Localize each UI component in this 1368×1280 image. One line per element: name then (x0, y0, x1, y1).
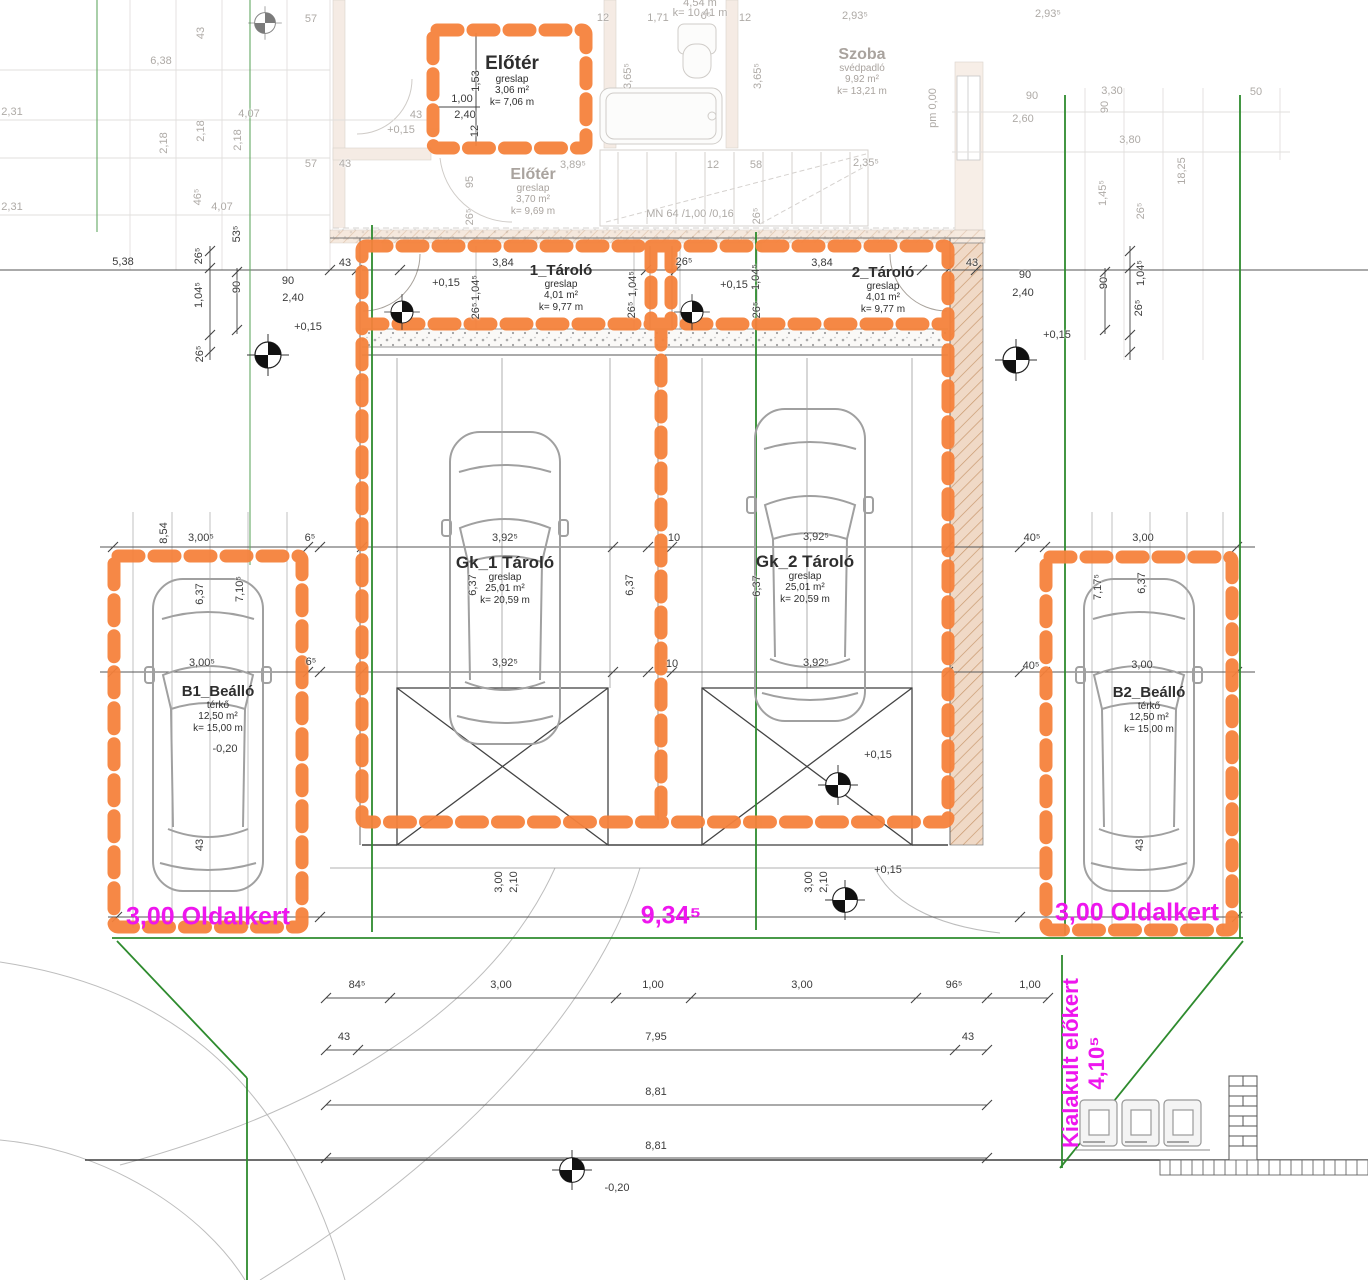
floor-plan: 121,716⁵122,93⁵2,93⁵4,54 mk= 10,41 m3,65… (0, 0, 1368, 1280)
dim-label: 3,84 (811, 257, 832, 269)
dim-label: 10 (668, 532, 680, 544)
dim-label: 1,04⁵ (627, 271, 639, 297)
dim-label: +0,15 (432, 277, 460, 289)
curb-strip (1160, 1160, 1368, 1175)
dim-label: 3,00⁵ (188, 532, 214, 544)
room-detail: greslap (852, 281, 915, 292)
kialakult-elokert-label: Kialakult előkert (1058, 978, 1084, 1148)
dim-label: 6,38 (150, 55, 171, 67)
dim-label: 96⁵ (946, 979, 963, 991)
dim-label: 3,84 (492, 257, 513, 269)
room-elotere-lower: Előtérgreslap3,70 m²k= 9,69 m (510, 166, 555, 217)
dim-label: 43 (410, 109, 422, 121)
dim-label: 2,40 (1012, 287, 1033, 299)
dim-label: 1,04⁵ (750, 264, 762, 290)
room-tarolo-2: 2_Tárológreslap4,01 m²k= 9,77 m (852, 264, 915, 315)
oldalkert-right-label: 3,00 Oldalkert (1055, 899, 1219, 928)
dim-label: +0,15 (874, 864, 902, 876)
dim-label: 57 (305, 158, 317, 170)
dim-label: 2,60 (1012, 113, 1033, 125)
dim-label: 3,00⁵ (189, 657, 215, 669)
room-detail: k= 9,69 m (510, 206, 555, 217)
dim-label: 7,95 (645, 1031, 666, 1043)
dim-label: 6⁵ (305, 532, 316, 544)
dim-label: 6,37 (194, 583, 206, 604)
dim-label: 43 (1134, 839, 1146, 851)
dim-label: 43 (339, 158, 351, 170)
dim-label: 1,00 (451, 93, 472, 105)
dim-label: +0,15 (294, 321, 322, 333)
dim-label: 3,00 (493, 871, 505, 892)
room-title: 1_Tároló (530, 262, 593, 279)
dim-label: k= 10,41 m (673, 7, 728, 19)
dim-9-34-label: 9,34⁵ (641, 902, 701, 931)
room-tarolo-1: 1_Tárológreslap4,01 m²k= 9,77 m (530, 262, 593, 313)
dim-label: -0,20 (604, 1182, 629, 1194)
dim-label: 90 (1026, 90, 1038, 102)
dim-label: 26⁵ (1135, 203, 1147, 220)
dim-label: 3,92⁵ (492, 657, 518, 669)
dim-label: 2,31 (1, 106, 22, 118)
dim-label: 2,35⁵ (853, 157, 879, 169)
dim-label: 90 (231, 281, 243, 293)
room-detail: k= 9,77 m (530, 302, 593, 313)
dim-label: 3,00 (803, 871, 815, 892)
dim-label: 6,37 (624, 574, 636, 595)
oldalkert-left-label: 3,00 Oldalkert (126, 903, 290, 932)
dim-label: 26⁵ (464, 209, 476, 226)
dim-label: 46⁵ (192, 189, 204, 206)
room-detail: k= 15,00 m (182, 723, 255, 734)
room-b2-beallo: B2_Beállótérkő12,50 m²k= 15,00 m (1113, 684, 1186, 735)
room-elotere-upper: Előtérgreslap3,06 m²k= 7,06 m (485, 54, 539, 108)
dim-label: 90 (1099, 101, 1111, 113)
room-detail: k= 20,59 m (756, 594, 854, 605)
dim-label: 8,54 (158, 522, 170, 543)
dim-label: 1,00 (642, 979, 663, 991)
room-detail: 12,50 m² (1113, 712, 1186, 723)
dim-label: 3,00 (1132, 532, 1153, 544)
dim-label: 1,04⁵ (1135, 260, 1147, 286)
dim-label: +0,15 (720, 279, 748, 291)
room-title: Szoba (837, 46, 887, 63)
dim-label: 1,00 (1019, 979, 1040, 991)
dim-label: +0,15 (387, 124, 415, 136)
room-gk1-tarolo: Gk_1 Tárológreslap25,01 m²k= 20,59 m (456, 553, 554, 606)
room-detail: k= 7,06 m (485, 97, 539, 108)
dim-label: 1,04⁵ (193, 282, 205, 308)
dim-label: 40⁵ (1023, 660, 1040, 672)
dim-label: 50 (1250, 86, 1262, 98)
site-plan-drawing (0, 0, 1368, 1280)
room-detail: svédpadló (837, 63, 887, 74)
dim-label: 3,92⁵ (492, 532, 518, 544)
dim-label: 2,10 (818, 871, 830, 892)
dim-label: 26⁵ (470, 303, 482, 320)
dim-label: 4,07 (238, 108, 259, 120)
room-title: B2_Beálló (1113, 684, 1186, 701)
dim-label: 26⁵ (676, 256, 693, 268)
room-detail: 3,06 m² (485, 85, 539, 96)
room-title: Gk_2 Tároló (756, 552, 854, 571)
dim-label: 8,81 (645, 1140, 666, 1152)
room-szoba: Szobasvédpadló9,92 m²k= 13,21 m (837, 46, 887, 97)
room-detail: k= 9,77 m (852, 304, 915, 315)
dim-label: -0,20 (212, 743, 237, 755)
dim-label: 26⁵ (751, 302, 763, 319)
dim-label: 1,04⁵ (470, 275, 482, 301)
dim-label: 84⁵ (349, 979, 366, 991)
dim-label: MN 64 /1,00 /0,16 (646, 208, 733, 220)
dim-label: 2,40 (282, 292, 303, 304)
dim-label: 90 (1019, 269, 1031, 281)
dim-label: 43 (966, 257, 978, 269)
room-detail: greslap (510, 183, 555, 194)
room-title: B1_Beálló (182, 683, 255, 700)
dim-label: 2,93⁵ (1035, 8, 1061, 20)
dim-label: 7,10⁵ (234, 576, 246, 602)
dim-label: 2,18 (195, 120, 207, 141)
dim-label: 2,93⁵ (842, 10, 868, 22)
dim-label: 8,81 (645, 1086, 666, 1098)
dim-label: 3,89⁵ (560, 159, 586, 171)
dim-label: 2,40 (454, 109, 475, 121)
dim-label: 40⁵ (1024, 532, 1041, 544)
dim-label: 6⁵ (306, 656, 317, 668)
dim-label: 6,37 (1136, 572, 1148, 593)
dim-label: 4,07 (211, 201, 232, 213)
room-detail: k= 20,59 m (456, 595, 554, 606)
dim-label: 2,10 (508, 871, 520, 892)
room-detail: 4,01 m² (852, 292, 915, 303)
dim-label: 12 (597, 12, 609, 24)
dim-label: 3,92⁵ (803, 657, 829, 669)
room-detail: 12,50 m² (182, 711, 255, 722)
dim-label: +0,15 (1043, 329, 1071, 341)
room-title: 2_Tároló (852, 264, 915, 281)
dim-label: +0,15 (864, 749, 892, 761)
room-detail: 4,01 m² (530, 290, 593, 301)
dim-label: 3,00 (1131, 659, 1152, 671)
room-detail: greslap (485, 74, 539, 85)
dim-label: 26⁵ (193, 248, 205, 265)
room-detail: 9,92 m² (837, 74, 887, 85)
room-title: Előtér (510, 166, 555, 183)
dim-label: 43 (194, 839, 206, 851)
dim-label: 2,31 (1, 201, 22, 213)
room-title: Előtér (485, 54, 539, 74)
dim-label: 43 (195, 27, 207, 39)
dim-label: 53⁵ (231, 226, 243, 243)
dim-label: 3,00 (490, 979, 511, 991)
dim-label: 26⁵ (194, 346, 206, 363)
dim-4-10-label: 4,10⁵ (1084, 1036, 1110, 1089)
trash-bin-icon (1080, 1100, 1201, 1146)
dim-label: 3,65⁵ (622, 63, 634, 89)
dim-label: 1,53 (470, 70, 482, 91)
dim-label: 90 (282, 275, 294, 287)
dim-label: 43 (338, 1031, 350, 1043)
dim-label: 2,18 (158, 132, 170, 153)
dim-label: 26⁵ (751, 208, 763, 225)
dim-label: 12 (739, 12, 751, 24)
dim-label: 2,18 (232, 129, 244, 150)
garage-structure (133, 33, 1223, 930)
dim-label: 1,71 (647, 12, 668, 24)
brick-wall (1229, 1076, 1257, 1160)
room-detail: greslap (530, 279, 593, 290)
dim-label: 5,38 (112, 256, 133, 268)
dim-label: 57 (305, 13, 317, 25)
dim-label: 10 (666, 658, 678, 670)
room-detail: térkő (182, 700, 255, 711)
dim-label: 58 (750, 159, 762, 171)
room-detail: greslap (456, 572, 554, 583)
dim-label: 90 (1098, 277, 1110, 289)
room-detail: k= 15,00 m (1113, 724, 1186, 735)
dim-label: 12 (469, 125, 481, 137)
dim-label: 95 (464, 176, 476, 188)
room-title: Gk_1 Tároló (456, 553, 554, 572)
dim-label: 1,45⁵ (1097, 180, 1109, 206)
dim-label: 12 (707, 159, 719, 171)
room-detail: greslap (756, 571, 854, 582)
dim-label: 18,25 (1176, 157, 1188, 185)
room-gk2-tarolo: Gk_2 Tárológreslap25,01 m²k= 20,59 m (756, 552, 854, 605)
dim-label: 3,00 (791, 979, 812, 991)
room-detail: 25,01 m² (756, 582, 854, 593)
room-detail: térkő (1113, 701, 1186, 712)
dim-label: 3,30 (1101, 85, 1122, 97)
room-detail: k= 13,21 m (837, 86, 887, 97)
dim-label: 26⁵ (1133, 300, 1145, 317)
dim-label: pm 0,00 (927, 88, 939, 128)
room-b1-beallo: B1_Beállótérkő12,50 m²k= 15,00 m (182, 683, 255, 734)
dim-label: 3,80 (1119, 134, 1140, 146)
room-detail: 25,01 m² (456, 583, 554, 594)
dim-label: 43 (962, 1031, 974, 1043)
dim-label: 7,17⁵ (1092, 574, 1104, 600)
dim-label: 3,92⁵ (803, 531, 829, 543)
room-detail: 3,70 m² (510, 194, 555, 205)
dim-label: 3,65⁵ (752, 63, 764, 89)
dim-label: 26⁵ (626, 302, 638, 319)
dim-label: 43 (339, 257, 351, 269)
